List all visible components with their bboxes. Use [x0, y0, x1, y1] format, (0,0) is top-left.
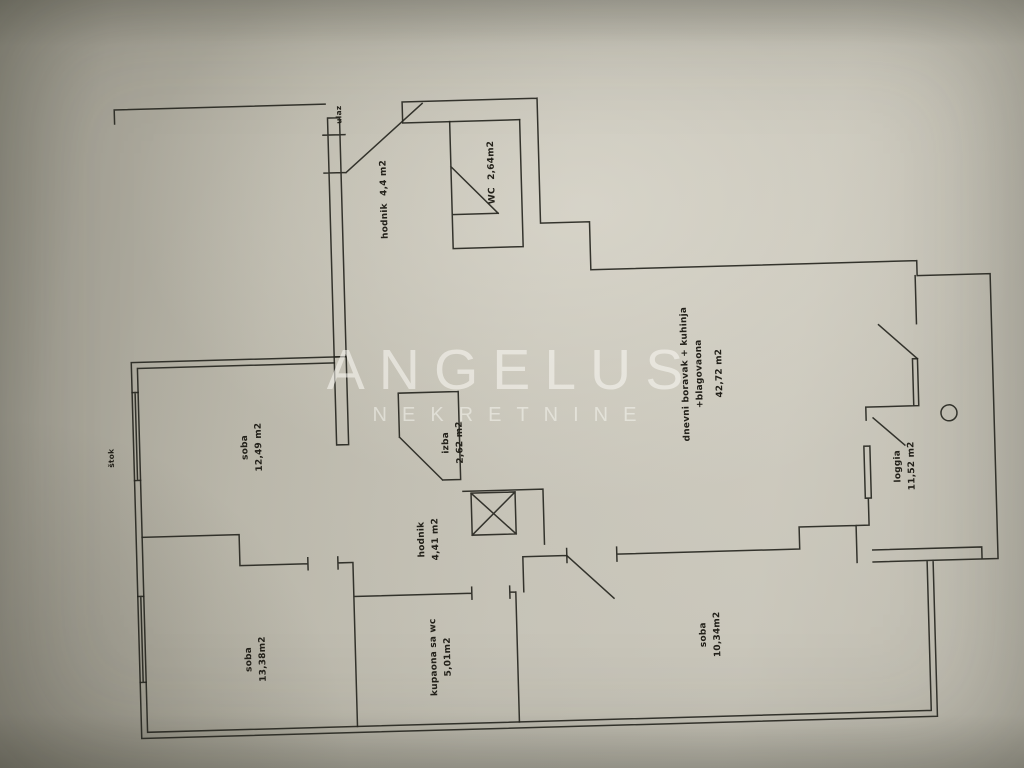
room-area: 12,49 m2: [252, 422, 268, 471]
ventilation-shaft: [471, 492, 516, 535]
room-name: soba: [696, 612, 712, 658]
floorplan-drawing: hodnik 4,4 m2 WC 2,64m2 soba 12,49 m2 iz…: [0, 0, 1024, 768]
loggia-drain-circle: [941, 405, 957, 421]
room-name: WC: [487, 187, 497, 204]
room-name: kupaona sa wc: [426, 618, 443, 696]
room-name: loggia: [890, 442, 906, 491]
room-label-wc: WC 2,64m2: [484, 139, 500, 207]
door-swings: [561, 324, 924, 600]
room-label-hodnik-ulaz: hodnik 4,4 m2: [376, 158, 393, 241]
room-name: hodnik: [380, 203, 391, 239]
room-label-kupaona: kupaona sa wc 5,01m2: [426, 618, 457, 696]
room-area: 2,62 m2: [453, 421, 469, 464]
room-area: 4,41 m2: [429, 518, 445, 561]
floorplan-walls: [0, 0, 1024, 768]
room-area: 13,38m2: [256, 636, 272, 682]
room-label-hodnik: hodnik 4,41 m2: [414, 518, 444, 561]
room-area: 11,52 m2: [905, 441, 921, 490]
room-label-soba-3: soba 10,34m2: [696, 611, 726, 657]
floorplan-photo: hodnik 4,4 m2 WC 2,64m2 soba 12,49 m2 iz…: [0, 0, 1024, 768]
room-area: 10,34m2: [710, 611, 726, 657]
room-label-loggia: loggia 11,52 m2: [890, 441, 920, 491]
annotation-stok: štok: [108, 449, 117, 468]
room-label-soba-1: soba 12,49 m2: [238, 422, 268, 472]
room-name: izba: [439, 421, 455, 464]
annotation-ulaz: ulaz: [335, 106, 344, 124]
room-area: 2,64m2: [486, 141, 497, 180]
room-label-soba-2: soba 13,38m2: [242, 636, 272, 682]
entrance-door-frame: [322, 103, 429, 357]
room-area: 5,01m2: [441, 618, 458, 696]
room-name: hodnik: [414, 518, 430, 561]
room-label-izba: izba 2,62 m2: [439, 421, 469, 464]
room-name: soba: [238, 423, 254, 472]
room-area: 4,4 m2: [379, 160, 390, 196]
room-label-dnevni-boravak: dnevni boravak + kuhinja +blagovaona 42,…: [677, 306, 729, 442]
room-name: soba: [242, 636, 258, 682]
